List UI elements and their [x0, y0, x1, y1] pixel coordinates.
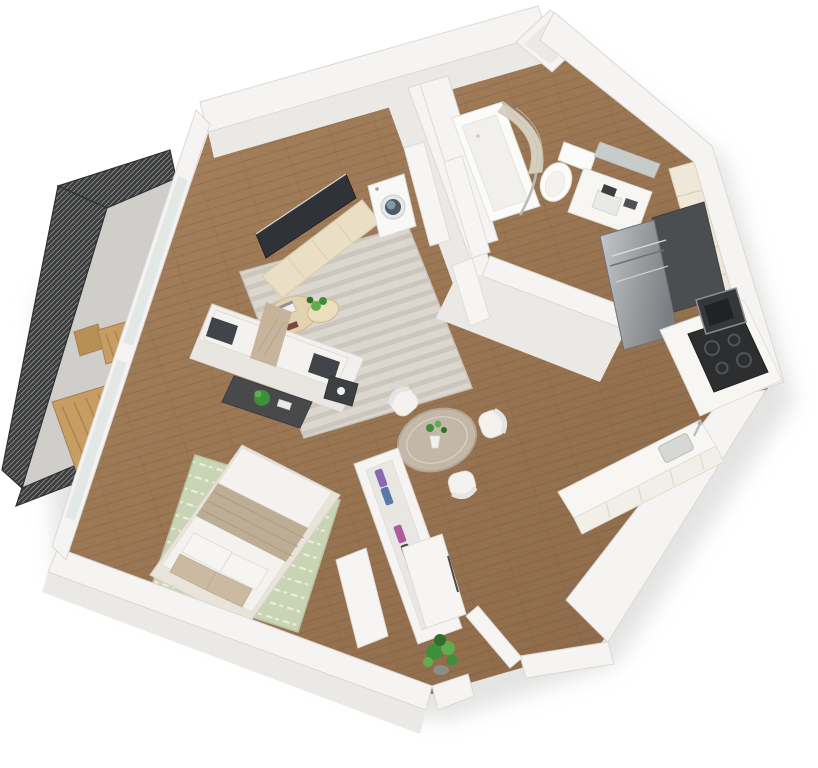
floorplan-render — [0, 0, 818, 768]
plant-pot — [433, 665, 449, 675]
faucet-head — [698, 421, 703, 426]
tub-drain — [476, 134, 480, 138]
floorplan-svg — [0, 0, 818, 768]
vase — [430, 436, 440, 448]
washer-knob — [375, 187, 379, 191]
vase — [337, 387, 345, 395]
